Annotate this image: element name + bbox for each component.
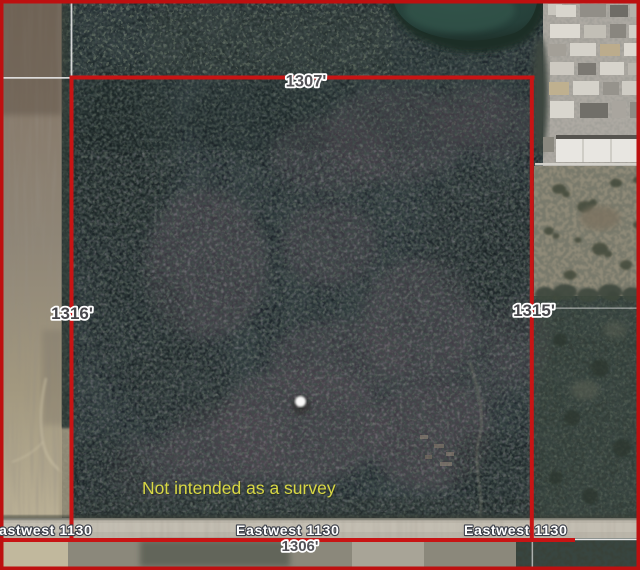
svg-text:1316': 1316': [51, 304, 93, 323]
svg-text:1315': 1315': [513, 301, 555, 320]
svg-text:Eastwest 1130: Eastwest 1130: [0, 523, 92, 539]
svg-text:Eastwest 1130: Eastwest 1130: [464, 523, 567, 539]
svg-text:Eastwest 1130: Eastwest 1130: [236, 523, 339, 539]
svg-text:1307': 1307': [286, 73, 327, 91]
svg-text:1306': 1306': [282, 538, 319, 555]
svg-text:Not intended as a survey: Not intended as a survey: [142, 478, 336, 498]
